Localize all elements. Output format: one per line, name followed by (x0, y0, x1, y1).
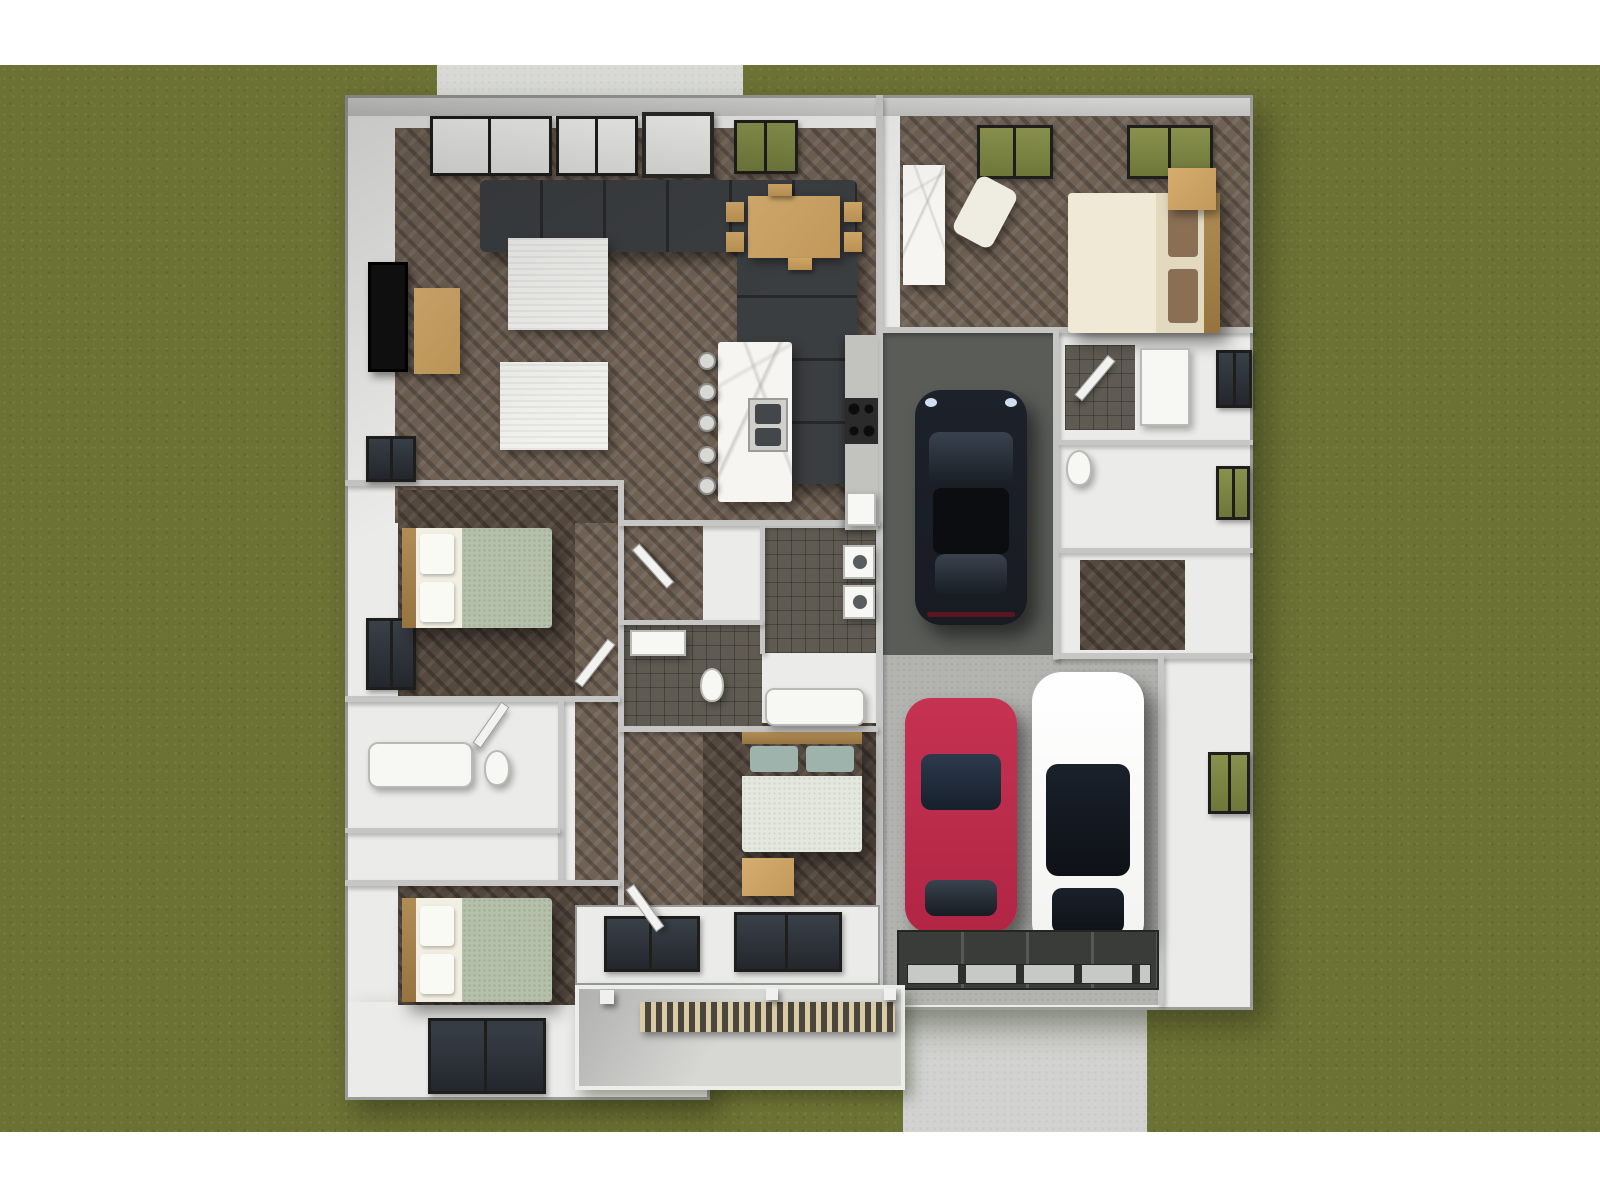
porch-post (884, 988, 896, 1000)
area-rug-1 (508, 238, 608, 330)
wall-bedroom2-south (345, 696, 620, 702)
bedroom2-window-2 (366, 618, 416, 690)
bedroom2-bed (402, 528, 552, 628)
refrigerator (846, 492, 876, 526)
south-window-2 (734, 912, 842, 972)
wall-bedroom2-east (618, 480, 624, 930)
bar-stool (698, 383, 716, 401)
bedroom2-window-1 (366, 436, 416, 482)
black-sports-car (915, 390, 1027, 625)
car-windshield (921, 754, 1001, 810)
cooktop (845, 398, 878, 444)
bedroom4-cabinet (742, 858, 794, 896)
car-glass-roof (1046, 764, 1130, 876)
bed2-pillow (420, 534, 454, 574)
bedroom3-window (428, 1018, 546, 1094)
hallbath-toilet (484, 750, 510, 786)
living-window-2 (556, 116, 638, 176)
car-taillight (927, 612, 1015, 617)
master-pillow (1168, 203, 1198, 257)
red-car (905, 698, 1017, 933)
living-window-1 (430, 116, 552, 176)
car-headlight (1005, 398, 1017, 407)
wall-closet-left (345, 828, 560, 833)
media-console (414, 288, 460, 374)
dryer (843, 585, 875, 619)
garage-door (897, 930, 1159, 990)
dryer-door (853, 595, 867, 609)
page-margin-bottom (0, 1132, 1600, 1200)
mudroom-counter (903, 165, 945, 285)
master-toilet (1066, 450, 1092, 486)
master-headboard (1204, 193, 1220, 333)
wall-bedroom3-north (345, 880, 620, 886)
car-rear-window (1052, 888, 1124, 934)
master-window-1 (977, 125, 1053, 179)
car-rear-window (925, 880, 997, 916)
wall-masterbath-mid (1059, 440, 1253, 445)
bar-stool (698, 446, 716, 464)
bed3-duvet (462, 898, 552, 1002)
wall-closet-north (1059, 548, 1253, 553)
bed3-pillow (420, 954, 454, 994)
bar-stool (698, 414, 716, 432)
wall-tv (368, 262, 408, 372)
bed4-duvet (742, 776, 862, 852)
bed3-headboard (402, 898, 416, 1002)
wall-bath-laundry (618, 620, 763, 625)
driveway (903, 1006, 1147, 1132)
wall-garage-west (876, 95, 883, 1010)
garage-door-glass-row (907, 964, 1151, 984)
bedroom4-bed (742, 732, 862, 852)
dining-window (734, 120, 798, 174)
garage-side-window (1208, 752, 1250, 814)
centerbath-tub (765, 688, 865, 726)
washer (843, 545, 875, 579)
porch (575, 985, 905, 1090)
master-nightstand (1168, 168, 1216, 210)
bed3-pillow (420, 906, 454, 946)
wall-masterbath-west (1053, 330, 1059, 660)
wall-greatroom-south (618, 520, 880, 526)
master-shower-floor (1065, 345, 1135, 430)
masterbath-window-1 (1216, 350, 1252, 408)
bed2-headboard (402, 528, 416, 628)
master-pillow (1168, 269, 1198, 323)
sink-basin (755, 404, 781, 424)
walkin-closet-floor (1080, 560, 1185, 650)
car-windshield (929, 432, 1013, 488)
porch-post (600, 990, 614, 1004)
wall-hallbath-east (558, 700, 564, 885)
masterbath-window-2 (1216, 466, 1250, 520)
roof-eave-top (348, 98, 1250, 116)
master-vanity (1140, 348, 1190, 426)
bar-stool (698, 352, 716, 370)
page-margin-top (0, 0, 1600, 65)
dining-chair (844, 232, 862, 252)
bed4-headboard (742, 732, 862, 744)
dining-chair (844, 202, 862, 222)
dining-chair (726, 202, 744, 222)
dining-table (748, 196, 840, 258)
centerbath-toilet (700, 668, 724, 702)
porch-railing (640, 1002, 895, 1032)
car-rear-window (935, 554, 1007, 596)
hallbath-tub (368, 742, 473, 788)
bed4-pillow (750, 746, 798, 772)
sink-basin (755, 428, 781, 446)
white-car (1032, 672, 1144, 952)
area-rug-2 (500, 362, 608, 450)
bed2-pillow (420, 582, 454, 622)
wall-masterbath-south (1053, 653, 1253, 659)
bedroom3-bed (402, 898, 552, 1002)
island-sink (748, 398, 788, 452)
bed2-duvet (462, 528, 552, 628)
front-door (642, 112, 714, 178)
floor-plan-render (0, 0, 1600, 1200)
washer-door (853, 555, 867, 569)
wall-laundry-west (760, 526, 765, 654)
car-roof (933, 488, 1009, 554)
dining-chair (726, 232, 744, 252)
porch-post (766, 988, 778, 1000)
dining-chair (788, 258, 812, 270)
centerbath-vanity (630, 630, 686, 656)
master-bed (1068, 193, 1220, 333)
car-headlight (925, 398, 937, 407)
bed4-pillow (806, 746, 854, 772)
dining-chair (768, 184, 792, 196)
bar-stool (698, 477, 716, 495)
